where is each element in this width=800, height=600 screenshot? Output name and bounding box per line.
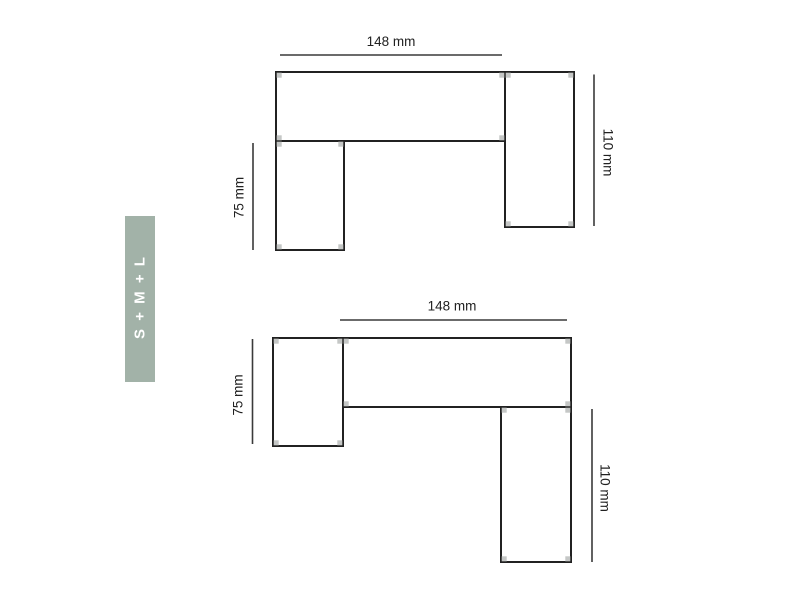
svg-text:110 mm: 110 mm <box>598 464 613 512</box>
svg-text:110 mm: 110 mm <box>601 129 616 177</box>
svg-text:148 mm: 148 mm <box>367 34 416 49</box>
svg-text:75 mm: 75 mm <box>231 374 246 415</box>
svg-text:75 mm: 75 mm <box>232 177 247 218</box>
svg-text:148 mm: 148 mm <box>428 299 477 314</box>
svg-text:S + M + L: S + M + L <box>132 255 149 339</box>
